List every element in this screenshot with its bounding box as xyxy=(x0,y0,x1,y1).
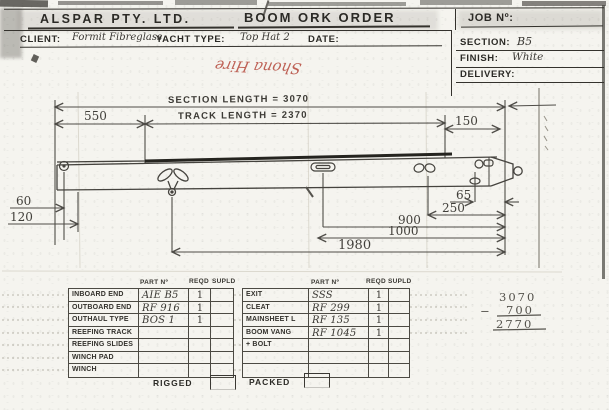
rigged-label: RIGGED xyxy=(153,378,193,388)
dim-150: 150 xyxy=(455,114,478,128)
reqd-qty xyxy=(189,364,211,377)
part-no xyxy=(139,339,189,352)
reqd-qty: 1 xyxy=(189,289,211,302)
reqd-header-right: REQD xyxy=(366,278,386,285)
supld-qty xyxy=(211,327,233,340)
boom-outline xyxy=(57,157,522,190)
supld-qty xyxy=(389,352,409,365)
calc-minus-sign: − xyxy=(480,304,490,318)
supld-qty xyxy=(389,364,409,377)
part-no xyxy=(139,364,189,377)
part-no xyxy=(309,352,369,365)
part-no: RF 916 xyxy=(139,302,189,315)
row-label: WINCH xyxy=(69,364,139,377)
dim-550: 550 xyxy=(84,109,107,123)
row-label: INBOARD END xyxy=(69,289,139,302)
row-label: REEFING SLIDES xyxy=(69,339,139,352)
part-no xyxy=(139,352,189,365)
reqd-qty: 1 xyxy=(369,327,389,340)
reqd-qty: 1 xyxy=(189,302,211,315)
dim-section-length: SECTION LENGTH = 3070 xyxy=(168,94,309,106)
calc-result: 2770 xyxy=(496,317,533,331)
packed-checkbox xyxy=(304,373,330,388)
part-no: BOS 1 xyxy=(139,314,189,327)
row-label: BOOM VANG xyxy=(243,327,309,340)
reqd-qty xyxy=(189,339,211,352)
reqd-qty xyxy=(369,352,389,365)
dim-65: 65 xyxy=(456,188,471,202)
part-no: AIE B5 xyxy=(139,289,189,302)
margin-tick-marks xyxy=(544,116,548,150)
exit-slot xyxy=(311,163,335,171)
calc-subtrahend: 700 xyxy=(506,303,534,317)
part-no: SSS xyxy=(309,289,369,302)
reqd-qty: 1 xyxy=(189,314,211,327)
reqd-qty: 1 xyxy=(369,289,389,302)
outhaul-sheave-fitting xyxy=(470,160,493,184)
part-no: RF 1045 xyxy=(309,327,369,340)
pencil-tick xyxy=(306,187,313,197)
part-no-header-left: PART Nº xyxy=(140,279,168,286)
supld-qty xyxy=(389,289,409,302)
part-no xyxy=(309,339,369,352)
end-cap xyxy=(491,157,513,186)
reqd-qty xyxy=(369,364,389,377)
row-label: + BOLT xyxy=(243,339,309,352)
reqd-header-left: REQD xyxy=(189,278,209,285)
part-no xyxy=(139,327,189,340)
dim-250: 250 xyxy=(442,201,465,215)
supld-header-right: SUPLD xyxy=(388,278,412,285)
dim-track-length: TRACK LENGTH = 2370 xyxy=(178,110,308,122)
dim-1980: 1980 xyxy=(338,238,371,253)
row-label xyxy=(243,364,309,377)
supld-qty xyxy=(211,289,233,302)
row-label: WINCH PAD xyxy=(69,352,139,365)
row-label: OUTBOARD END xyxy=(69,302,139,315)
row-label xyxy=(243,352,309,365)
supld-qty xyxy=(389,302,409,315)
supld-qty xyxy=(389,327,409,340)
supld-qty xyxy=(211,314,233,327)
supld-qty xyxy=(389,314,409,327)
row-label: OUTHAUL TYPE xyxy=(69,314,139,327)
reqd-qty: 1 xyxy=(369,314,389,327)
reefing-cleat xyxy=(156,167,190,196)
scanned-work-order: ALSPAR PTY. LTD. BOOM ORK ORDER JOB Nº: … xyxy=(0,0,609,410)
row-label: MAINSHEET L xyxy=(243,314,309,327)
parts-table-left: INBOARD END AIE B5 1 OUTBOARD END RF 916… xyxy=(68,288,234,378)
part-no: RF 135 xyxy=(309,314,369,327)
part-no-header-right: PART Nº xyxy=(311,279,339,286)
reqd-qty: 1 xyxy=(369,302,389,315)
supld-qty xyxy=(211,339,233,352)
supld-header-left: SUPLD xyxy=(212,278,236,285)
dim-1000: 1000 xyxy=(388,224,419,238)
supld-qty xyxy=(389,339,409,352)
supld-qty xyxy=(211,352,233,365)
gooseneck-pin xyxy=(60,162,69,171)
outhaul-eye xyxy=(514,167,522,175)
part-no: RF 299 xyxy=(309,302,369,315)
reqd-qty xyxy=(369,339,389,352)
row-label: REEFING TRACK xyxy=(69,327,139,340)
dim-60: 60 xyxy=(16,194,31,208)
reqd-qty xyxy=(189,327,211,340)
rigged-checkbox xyxy=(210,375,236,390)
packed-label: PACKED xyxy=(249,377,290,387)
dim-120: 120 xyxy=(10,210,33,224)
bowtie-cleat xyxy=(413,163,436,174)
reqd-qty xyxy=(189,352,211,365)
supld-qty xyxy=(211,302,233,315)
row-label: EXIT xyxy=(243,289,309,302)
parts-table-right: EXIT SSS 1 CLEAT RF 299 1 MAINSHEET L RF… xyxy=(242,288,410,378)
calc-minuend: 3070 xyxy=(499,290,536,304)
boom-track xyxy=(145,154,452,161)
row-label: CLEAT xyxy=(243,302,309,315)
